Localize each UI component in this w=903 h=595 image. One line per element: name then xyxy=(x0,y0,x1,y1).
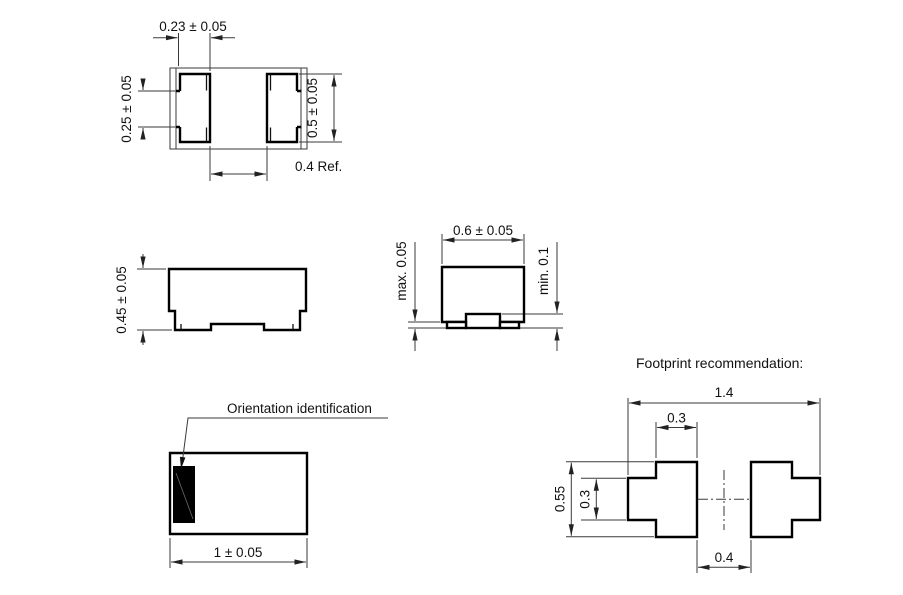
dim-standoff-max: max. 0.05 xyxy=(394,241,415,351)
footprint-extension-lines xyxy=(566,398,820,573)
dim-terminal-length-label: 0.5 ± 0.05 xyxy=(305,78,320,138)
front-view-right-foot xyxy=(500,322,519,328)
footprint-view: Footprint recommendation: 1.4 0.3 0.55 0… xyxy=(553,355,821,573)
dim-terminal-notch-label: 0.25 ± 0.05 xyxy=(119,75,134,142)
dim-footprint-pad-height-label: 0.55 xyxy=(553,486,568,512)
orientation-callout-label: Orientation identification xyxy=(227,401,372,416)
dim-electrode-min: min. 0.1 xyxy=(536,242,557,351)
dim-standoff-max-label: max. 0.05 xyxy=(394,241,409,300)
dim-footprint-overall-label: 1.4 xyxy=(715,385,734,400)
dim-footprint-pad-height: 0.55 xyxy=(553,463,572,536)
bottom-view: Orientation identification 1 ± 0.05 xyxy=(170,401,388,568)
dim-terminal-gap: 0.4 Ref. xyxy=(211,159,342,174)
top-view-body-outline xyxy=(170,68,307,149)
dim-body-length: 1 ± 0.05 xyxy=(171,545,306,562)
dim-body-length-label: 1 ± 0.05 xyxy=(214,545,263,560)
dim-front-width-label: 0.6 ± 0.05 xyxy=(453,223,513,238)
component-dimension-drawing: 0.23 ± 0.05 0.25 ± 0.05 0.5 ± 0.05 0.4 R… xyxy=(0,0,903,595)
dim-footprint-pad-width: 0.3 xyxy=(657,411,696,428)
side-view: 0.45 ± 0.05 xyxy=(114,254,306,345)
dim-terminal-length: 0.5 ± 0.05 xyxy=(305,75,334,141)
side-view-outline xyxy=(169,269,306,330)
dim-front-width: 0.6 ± 0.05 xyxy=(443,223,523,240)
dim-footprint-pad-gap-label: 0.4 xyxy=(715,550,734,565)
dim-body-height-label: 0.45 ± 0.05 xyxy=(114,266,129,333)
dim-terminal-notch: 0.25 ± 0.05 xyxy=(119,75,143,142)
footprint-centerlines xyxy=(698,470,750,530)
top-view: 0.23 ± 0.05 0.25 ± 0.05 0.5 ± 0.05 0.4 R… xyxy=(119,19,342,181)
front-view-center-electrode xyxy=(466,314,500,328)
dim-body-height: 0.45 ± 0.05 xyxy=(114,254,143,345)
dim-electrode-min-label: min. 0.1 xyxy=(536,247,551,295)
dim-footprint-pad-width-label: 0.3 xyxy=(667,411,686,426)
footprint-right-pad xyxy=(751,462,820,537)
front-view: 0.6 ± 0.05 max. 0.05 min. 0.1 xyxy=(394,223,563,351)
dim-footprint-overall: 1.4 xyxy=(629,385,819,403)
dim-footprint-pad-notch-height-label: 0.3 xyxy=(578,490,593,509)
top-view-terminals xyxy=(176,74,302,142)
dim-terminal-top-width-label: 0.23 ± 0.05 xyxy=(159,19,226,34)
front-view-left-foot xyxy=(447,322,466,328)
footprint-title: Footprint recommendation: xyxy=(636,355,803,371)
dim-terminal-gap-label: 0.4 Ref. xyxy=(295,159,342,174)
footprint-left-pad xyxy=(628,462,697,537)
dim-footprint-pad-notch-height: 0.3 xyxy=(578,479,597,519)
dim-terminal-top-width: 0.23 ± 0.05 xyxy=(153,19,235,38)
side-view-extension-lines xyxy=(137,269,172,330)
top-view-terminal-wrap-ticks xyxy=(207,74,271,142)
dim-footprint-pad-gap: 0.4 xyxy=(698,550,750,567)
technical-drawing-page: 0.23 ± 0.05 0.25 ± 0.05 0.5 ± 0.05 0.4 R… xyxy=(0,0,903,595)
